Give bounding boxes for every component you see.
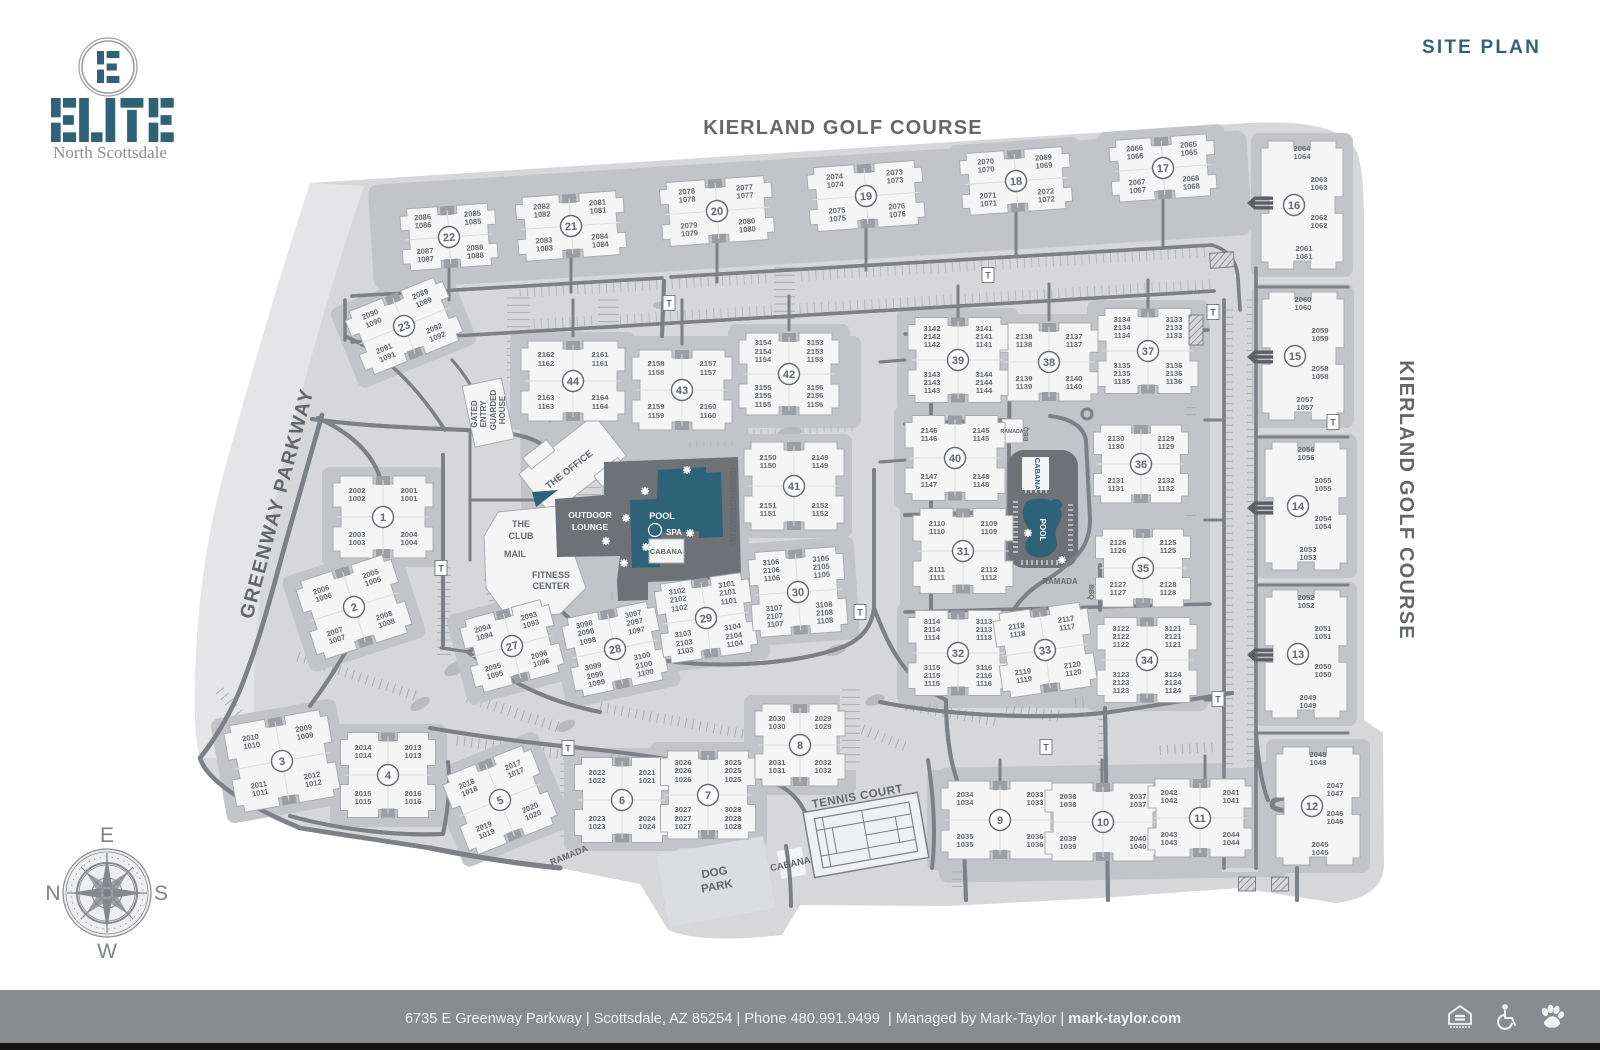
- svg-text:21371137: 21371137: [1066, 332, 1083, 349]
- svg-text:21461146: 21461146: [921, 426, 938, 443]
- svg-text:T: T: [438, 564, 444, 574]
- svg-text:RAMADA: RAMADA: [1000, 429, 1023, 435]
- svg-text:20491049: 20491049: [1300, 693, 1317, 710]
- svg-text:313321331133: 313321331133: [1166, 315, 1183, 340]
- svg-text:310621061106: 310621061106: [762, 557, 781, 583]
- svg-text:20581058: 20581058: [1312, 364, 1329, 381]
- svg-text:8: 8: [797, 740, 803, 752]
- svg-text:310321031103: 310321031103: [674, 628, 694, 656]
- svg-text:20641064: 20641064: [1294, 144, 1312, 161]
- svg-text:20301030: 20301030: [769, 714, 786, 731]
- svg-text:20121012: 20121012: [303, 770, 323, 790]
- svg-text:20351035: 20351035: [957, 832, 975, 849]
- svg-text:T: T: [857, 608, 863, 618]
- svg-text:314221421142: 314221421142: [924, 324, 941, 349]
- svg-text:21181118: 21181118: [1008, 621, 1027, 640]
- svg-text:20311031: 20311031: [769, 758, 787, 775]
- svg-text:22: 22: [443, 232, 456, 245]
- svg-text:41: 41: [788, 481, 800, 493]
- svg-text:21251125: 21251125: [1160, 538, 1178, 555]
- svg-text:20091009: 20091009: [295, 722, 315, 742]
- svg-text:20: 20: [711, 206, 724, 219]
- svg-text:GATEDENTRY: GATEDENTRY: [470, 400, 488, 428]
- svg-text:314121411141: 314121411141: [976, 324, 994, 349]
- svg-text:310221021102: 310221021102: [668, 586, 688, 614]
- svg-text:E: E: [100, 824, 114, 847]
- svg-text:20471047: 20471047: [1327, 781, 1344, 798]
- svg-text:20771077: 20771077: [736, 182, 754, 200]
- svg-text:21471147: 21471147: [921, 472, 938, 489]
- svg-text:20791079: 20791079: [680, 220, 698, 238]
- svg-text:20861086: 20861086: [414, 212, 432, 230]
- svg-text:20841084: 20841084: [591, 231, 610, 249]
- svg-text:20031003: 20031003: [349, 530, 366, 547]
- svg-text:T: T: [1215, 695, 1221, 705]
- svg-text:POOL: POOL: [649, 511, 675, 521]
- svg-text:21191119: 21191119: [1014, 666, 1033, 685]
- svg-text:20401040: 20401040: [1130, 834, 1147, 851]
- svg-text:21281128: 21281128: [1160, 580, 1177, 597]
- svg-text:20141014: 20141014: [355, 743, 373, 760]
- svg-text:S: S: [154, 882, 168, 905]
- svg-text:21311131: 21311131: [1108, 476, 1126, 493]
- svg-text:LOUNGE: LOUNGE: [572, 522, 609, 532]
- svg-text:21261126: 21261126: [1110, 538, 1127, 555]
- svg-text:T: T: [985, 271, 991, 281]
- svg-text:311621161116: 311621161116: [976, 663, 992, 688]
- svg-text:10: 10: [1097, 817, 1109, 829]
- svg-text:19: 19: [860, 191, 873, 204]
- svg-text:21641164: 21641164: [592, 393, 610, 411]
- svg-text:CABANA: CABANA: [650, 547, 683, 556]
- svg-text:MAIL: MAIL: [504, 549, 526, 559]
- svg-text:FITNESS: FITNESS: [532, 570, 570, 580]
- svg-text:CABANA: CABANA: [1033, 458, 1042, 491]
- svg-text:11: 11: [1194, 813, 1206, 825]
- svg-text:21501150: 21501150: [760, 453, 777, 470]
- svg-text:20041004: 20041004: [401, 530, 419, 547]
- svg-text:20021002: 20021002: [349, 486, 366, 503]
- svg-text:20331033: 20331033: [1027, 790, 1044, 807]
- svg-text:21591159: 21591159: [648, 402, 665, 420]
- svg-text:20691069: 20691069: [1035, 152, 1053, 170]
- svg-text:KIERLAND GOLF COURSE: KIERLAND GOLF COURSE: [1395, 360, 1417, 640]
- svg-text:44: 44: [567, 376, 580, 388]
- svg-text:20101010: 20101010: [241, 732, 261, 752]
- svg-text:20291029: 20291029: [815, 714, 832, 731]
- svg-text:20541054: 20541054: [1315, 514, 1333, 531]
- svg-text:13: 13: [1292, 649, 1304, 661]
- svg-text:20371037: 20371037: [1130, 792, 1147, 809]
- svg-text:314421441144: 314421441144: [976, 370, 994, 395]
- svg-text:GAMING RAMADA: GAMING RAMADA: [728, 470, 738, 545]
- svg-text:21381138: 21381138: [1016, 332, 1033, 349]
- svg-text:28: 28: [608, 643, 622, 657]
- svg-text:310721071107: 310721071107: [765, 603, 784, 629]
- svg-text:20511051: 20511051: [1315, 624, 1333, 641]
- svg-text:21611161: 21611161: [592, 350, 610, 368]
- svg-text:43: 43: [676, 385, 688, 397]
- svg-text:20321032: 20321032: [815, 758, 832, 775]
- svg-text:30: 30: [792, 587, 805, 600]
- svg-text:20131013: 20131013: [405, 743, 422, 760]
- svg-text:21101110: 21101110: [929, 519, 945, 536]
- svg-text:20661066: 20661066: [1126, 143, 1144, 161]
- svg-text:21171117: 21171117: [1057, 614, 1076, 633]
- svg-text:34: 34: [1141, 655, 1154, 667]
- svg-text:17: 17: [1157, 163, 1170, 176]
- svg-text:20681068: 20681068: [1182, 174, 1200, 192]
- svg-text:20381038: 20381038: [1060, 792, 1077, 809]
- svg-text:20451045: 20451045: [1312, 840, 1330, 857]
- svg-text:16: 16: [1288, 200, 1300, 212]
- svg-text:20461046: 20461046: [1327, 809, 1344, 826]
- svg-text:315521551155: 315521551155: [755, 383, 773, 409]
- svg-text:12: 12: [1306, 801, 1318, 813]
- svg-text:314321431143: 314321431143: [924, 370, 941, 395]
- svg-text:THE: THE: [512, 519, 530, 529]
- svg-text:21: 21: [565, 221, 578, 234]
- svg-text:20741074: 20741074: [826, 172, 845, 190]
- svg-text:312421241124: 312421241124: [1165, 670, 1183, 695]
- svg-text:CLUB: CLUB: [509, 531, 534, 541]
- svg-text:20501050: 20501050: [1315, 662, 1332, 679]
- svg-text:20441044: 20441044: [1223, 830, 1241, 847]
- svg-text:BBQ: BBQ: [1023, 427, 1030, 441]
- svg-text:20391039: 20391039: [1060, 834, 1077, 851]
- svg-text:20571057: 20571057: [1297, 395, 1314, 412]
- svg-text:20831083: 20831083: [535, 235, 553, 253]
- svg-text:20621062: 20621062: [1311, 213, 1328, 230]
- svg-text:20721072: 20721072: [1037, 186, 1055, 204]
- svg-text:20011001: 20011001: [401, 486, 419, 503]
- svg-text:312221221122: 312221221122: [1113, 624, 1130, 649]
- svg-text:18: 18: [1010, 176, 1023, 189]
- svg-text:21091109: 21091109: [981, 519, 998, 536]
- svg-text:21621162: 21621162: [538, 350, 555, 368]
- svg-text:20481048: 20481048: [1310, 750, 1327, 767]
- svg-text:20341034: 20341034: [957, 790, 975, 807]
- svg-text:313621361136: 313621361136: [1166, 361, 1183, 386]
- svg-text:37: 37: [1142, 346, 1154, 358]
- svg-text:20811081: 20811081: [589, 197, 608, 215]
- svg-text:20211021: 20211021: [639, 768, 657, 785]
- svg-text:T: T: [666, 299, 672, 309]
- svg-text:T: T: [1330, 418, 1336, 428]
- svg-text:20801080: 20801080: [738, 216, 756, 234]
- svg-text:20671067: 20671067: [1128, 177, 1146, 195]
- svg-text:21601160: 21601160: [700, 402, 717, 420]
- svg-text:14: 14: [1292, 501, 1305, 513]
- svg-text:21111111: 21111111: [929, 565, 946, 582]
- svg-text:36: 36: [1135, 459, 1147, 471]
- svg-text:21271127: 21271127: [1110, 580, 1127, 597]
- svg-text:302520251025: 302520251025: [725, 758, 743, 784]
- svg-text:N: N: [45, 882, 60, 905]
- svg-text:21301130: 21301130: [1108, 434, 1125, 451]
- svg-text:1: 1: [380, 512, 386, 524]
- svg-text:40: 40: [949, 453, 961, 465]
- svg-text:7: 7: [705, 790, 711, 802]
- svg-text:T: T: [1210, 308, 1216, 318]
- svg-text:302720271027: 302720271027: [675, 805, 692, 831]
- svg-text:20631063: 20631063: [1311, 175, 1328, 192]
- svg-text:BBQ: BBQ: [1087, 584, 1094, 600]
- svg-text:CENTER: CENTER: [532, 581, 570, 591]
- svg-text:32: 32: [952, 648, 964, 660]
- svg-text:4: 4: [385, 770, 392, 782]
- svg-text:21391139: 21391139: [1016, 374, 1033, 391]
- svg-text:20651065: 20651065: [1180, 140, 1199, 158]
- svg-text:21321132: 21321132: [1158, 476, 1175, 493]
- svg-text:20881088: 20881088: [466, 243, 484, 261]
- svg-text:T: T: [565, 744, 571, 754]
- svg-text:W: W: [97, 940, 117, 963]
- svg-text:21511151: 21511151: [760, 501, 778, 518]
- svg-text:20711071: 20711071: [979, 190, 998, 208]
- svg-text:313421341134: 313421341134: [1114, 315, 1132, 340]
- svg-text:9: 9: [997, 815, 1003, 827]
- svg-text:20221022: 20221022: [589, 768, 606, 785]
- svg-text:KIERLAND GOLF COURSE: KIERLAND GOLF COURSE: [703, 117, 983, 139]
- svg-text:20611061: 20611061: [1296, 244, 1314, 261]
- svg-text:20521052: 20521052: [1298, 593, 1315, 610]
- svg-text:312321231123: 312321231123: [1113, 670, 1130, 695]
- svg-text:20421042: 20421042: [1161, 788, 1178, 805]
- svg-text:302820281028: 302820281028: [725, 805, 742, 831]
- svg-text:315621561156: 315621561156: [807, 383, 824, 409]
- svg-text:20241024: 20241024: [639, 814, 657, 831]
- svg-text:21631163: 21631163: [538, 393, 555, 411]
- svg-text:310521051105: 310521051105: [812, 554, 831, 580]
- svg-text:21571157: 21571157: [700, 359, 717, 377]
- svg-text:20161016: 20161016: [405, 789, 422, 806]
- svg-text:20871087: 20871087: [416, 246, 434, 264]
- svg-text:20731073: 20731073: [886, 167, 904, 185]
- svg-text:20151015: 20151015: [355, 789, 373, 806]
- svg-text:SITE PLAN: SITE PLAN: [1422, 37, 1541, 58]
- svg-text:21291129: 21291129: [1158, 434, 1175, 451]
- svg-text:313521351135: 313521351135: [1114, 361, 1132, 386]
- svg-text:6: 6: [619, 795, 625, 807]
- svg-text:20781078: 20781078: [678, 186, 696, 204]
- svg-text:20411041: 20411041: [1223, 788, 1241, 805]
- svg-text:20591059: 20591059: [1312, 326, 1329, 343]
- svg-text:20821082: 20821082: [533, 201, 551, 219]
- svg-text:21491149: 21491149: [812, 453, 829, 470]
- svg-text:20361036: 20361036: [1027, 832, 1044, 849]
- svg-text:29: 29: [699, 612, 713, 626]
- svg-text:20231023: 20231023: [589, 814, 606, 831]
- svg-text:31: 31: [957, 546, 969, 558]
- svg-text:311421141114: 311421141114: [924, 617, 941, 642]
- svg-text:21581158: 21581158: [648, 359, 665, 377]
- svg-text:15: 15: [1289, 351, 1301, 363]
- svg-text:39: 39: [952, 355, 964, 367]
- svg-text:21451145: 21451145: [973, 426, 991, 443]
- svg-text:310821081108: 310821081108: [815, 600, 834, 626]
- svg-text:20561056: 20561056: [1298, 445, 1315, 462]
- svg-text:RAMADA: RAMADA: [1042, 577, 1078, 586]
- svg-text:33: 33: [1038, 644, 1052, 658]
- svg-text:21121112: 21121112: [981, 565, 997, 582]
- svg-text:20701070: 20701070: [977, 156, 995, 174]
- svg-text:20761076: 20761076: [888, 201, 906, 219]
- svg-text:312121211121: 312121211121: [1165, 624, 1183, 649]
- svg-text:20431043: 20431043: [1161, 830, 1178, 847]
- svg-text:311521151115: 311521151115: [924, 663, 941, 688]
- svg-text:21521152: 21521152: [812, 501, 829, 518]
- svg-text:42: 42: [783, 369, 795, 381]
- svg-text:20851085: 20851085: [464, 209, 483, 227]
- svg-text:21401140: 21401140: [1066, 374, 1083, 391]
- svg-text:SPA: SPA: [666, 528, 682, 537]
- svg-text:20751075: 20751075: [828, 205, 847, 223]
- svg-text:POOL: POOL: [1038, 519, 1047, 542]
- svg-text:20601060: 20601060: [1295, 295, 1312, 312]
- svg-text:35: 35: [1137, 563, 1149, 575]
- svg-text:6735 E Greenway Parkway | Scot: 6735 E Greenway Parkway | Scottsdale, AZ…: [405, 1011, 1181, 1027]
- svg-text:20531053: 20531053: [1300, 545, 1317, 562]
- svg-text:315421541154: 315421541154: [755, 338, 773, 364]
- svg-text:OUTDOOR: OUTDOOR: [568, 510, 611, 520]
- svg-text:21481148: 21481148: [973, 472, 990, 489]
- svg-text:20551055: 20551055: [1315, 476, 1333, 493]
- svg-text:21201120: 21201120: [1063, 659, 1082, 678]
- svg-text:North Scottsdale: North Scottsdale: [53, 143, 167, 162]
- svg-text:38: 38: [1043, 357, 1055, 369]
- svg-text:302620261026: 302620261026: [675, 758, 692, 784]
- svg-text:T: T: [1043, 743, 1049, 753]
- svg-text:315321531153: 315321531153: [807, 338, 824, 364]
- svg-text:311321131113: 311321131113: [976, 617, 992, 642]
